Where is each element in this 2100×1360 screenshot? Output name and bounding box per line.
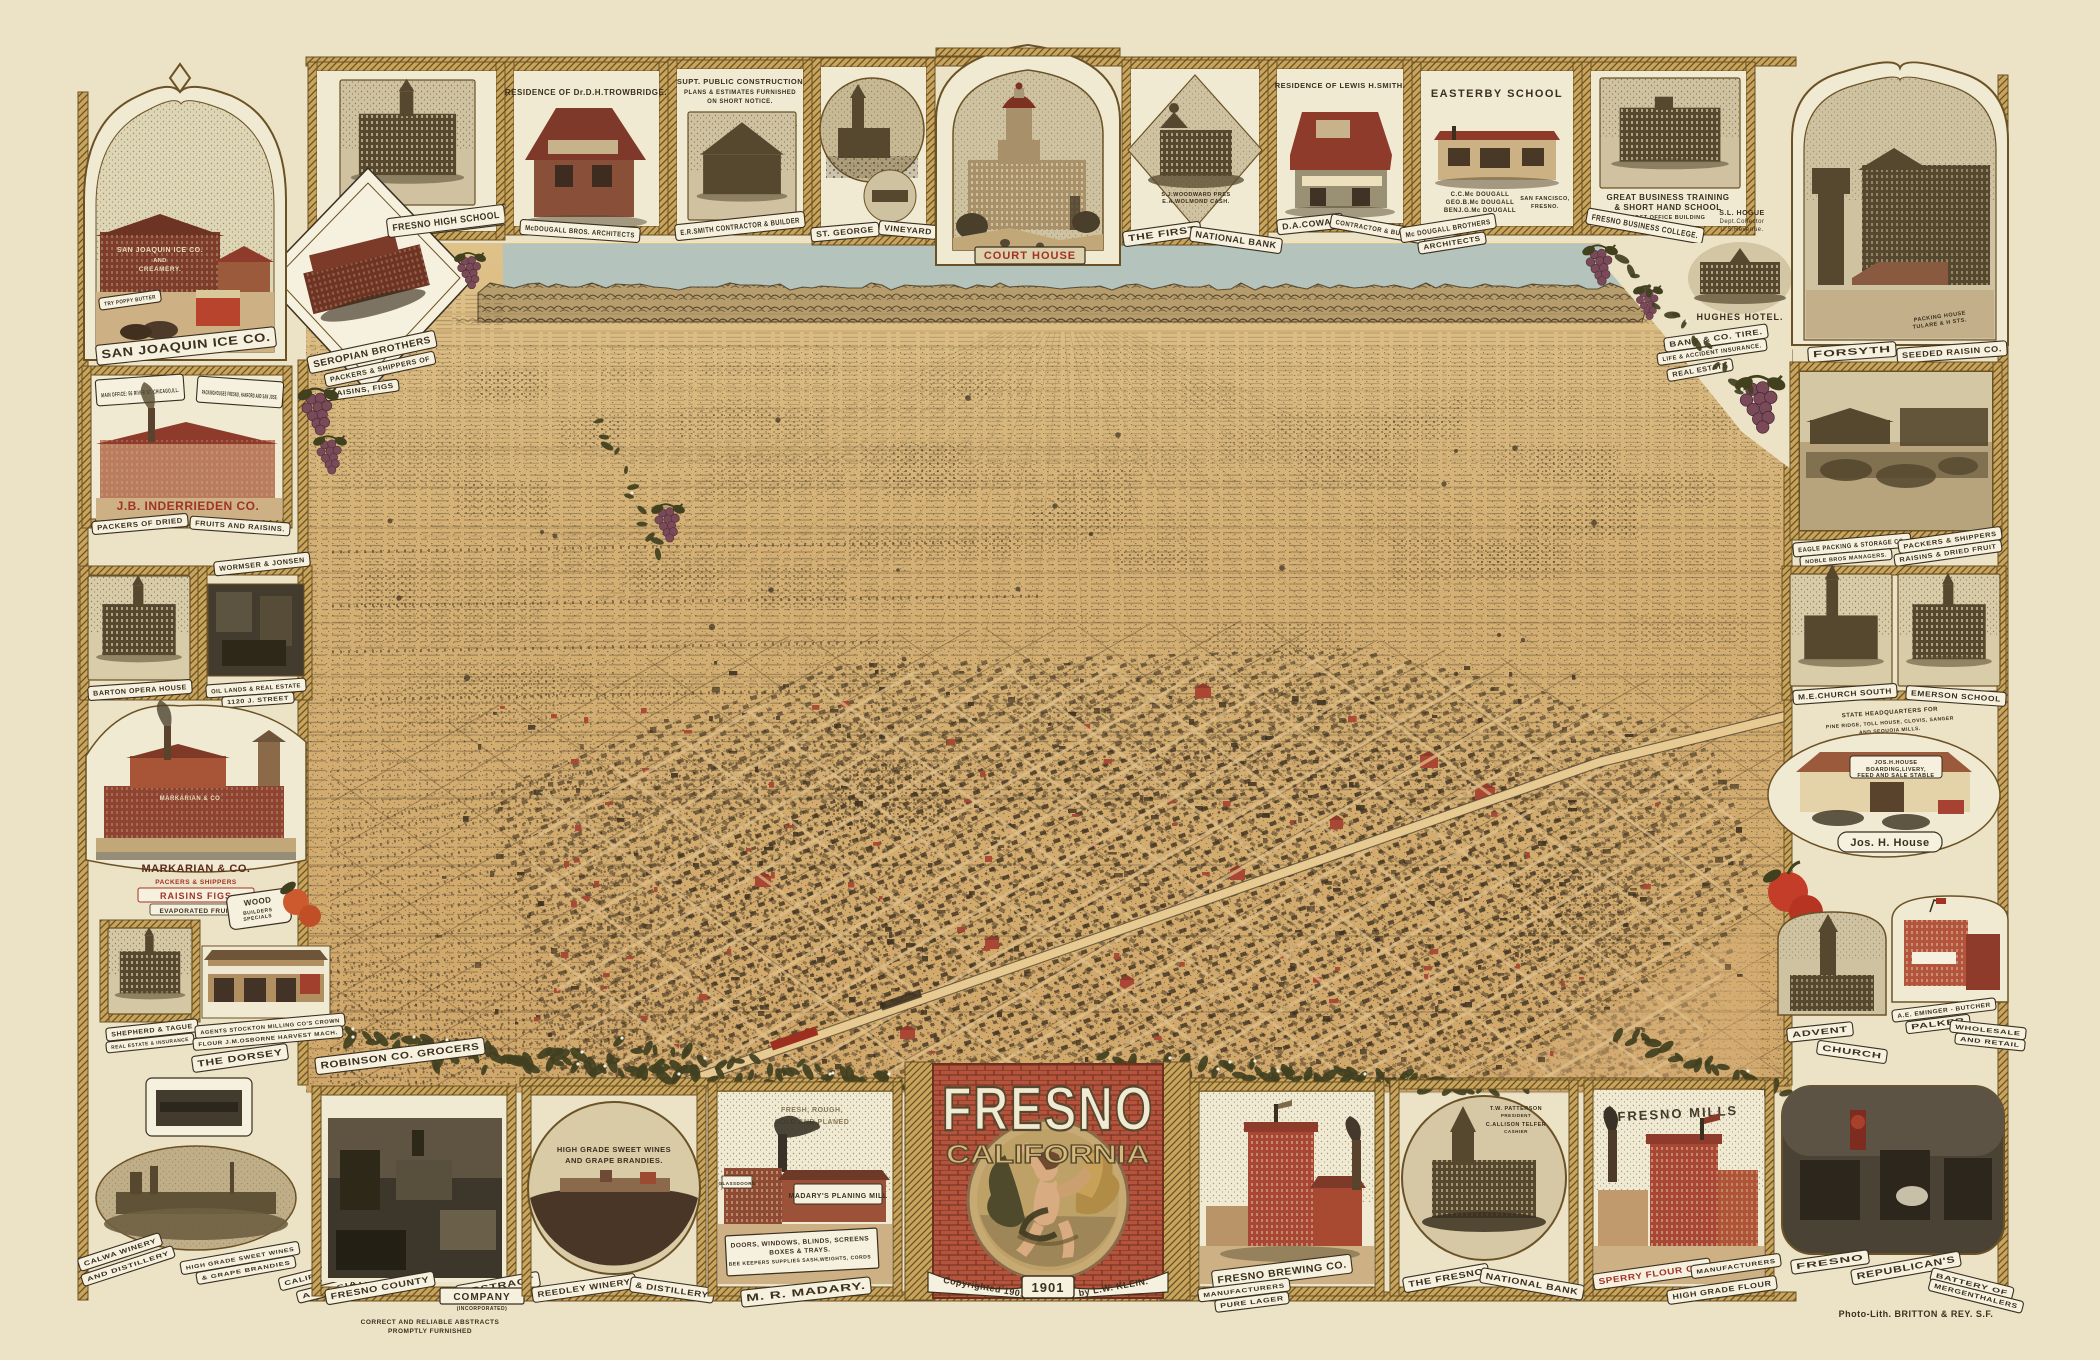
svg-text:EVAPORATED FRUIT: EVAPORATED FRUIT <box>159 908 232 915</box>
svg-text:MARKARIAN & CO: MARKARIAN & CO <box>160 796 221 802</box>
svg-text:GEO.B.Mc DOUGALL: GEO.B.Mc DOUGALL <box>1446 200 1515 206</box>
svg-text:JOS.H.HOUSE: JOS.H.HOUSE <box>1874 760 1917 766</box>
svg-text:& SHORT HAND SCHOOL: & SHORT HAND SCHOOL <box>1614 203 1721 212</box>
svg-text:SAN FANCISCO,: SAN FANCISCO, <box>1520 196 1570 202</box>
svg-text:ON SHORT NOTICE.: ON SHORT NOTICE. <box>707 99 773 105</box>
svg-text:S.L. HOGUE: S.L. HOGUE <box>1719 210 1764 217</box>
svg-text:MADARY'S PLANING MILL: MADARY'S PLANING MILL <box>788 1193 887 1200</box>
svg-text:COURT HOUSE: COURT HOUSE <box>984 250 1076 262</box>
svg-text:J.B. INDERRIEDEN CO.: J.B. INDERRIEDEN CO. <box>117 499 260 513</box>
svg-text:RESIDENCE OF LEWIS H.SMITH.: RESIDENCE OF LEWIS H.SMITH. <box>1275 81 1406 90</box>
svg-text:FRESH, ROUGH,: FRESH, ROUGH, <box>781 1107 843 1114</box>
svg-text:PLANS & ESTIMATES FURNISHED: PLANS & ESTIMATES FURNISHED <box>684 90 796 96</box>
svg-text:SAN JOAQUIN ICE CO.: SAN JOAQUIN ICE CO. <box>117 247 203 254</box>
svg-text:MARKARIAN & CO.: MARKARIAN & CO. <box>142 863 251 875</box>
svg-text:Jos. H. House: Jos. H. House <box>1850 837 1929 849</box>
svg-text:PROMPTLY FURNISHED: PROMPTLY FURNISHED <box>388 1328 472 1335</box>
svg-text:FRESNO: FRESNO <box>942 1075 1154 1144</box>
svg-text:C.ALLISON TELFER: C.ALLISON TELFER <box>1486 1122 1547 1128</box>
svg-text:CORRECT AND RELIABLE ABSTRACTS: CORRECT AND RELIABLE ABSTRACTS <box>361 1319 500 1326</box>
svg-text:C.C.Mc DOUGALL: C.C.Mc DOUGALL <box>1451 192 1510 198</box>
svg-text:AND GRAPE BRANDIES.: AND GRAPE BRANDIES. <box>565 1156 663 1165</box>
svg-text:E.A.WOLMOND CASH.: E.A.WOLMOND CASH. <box>1162 199 1229 205</box>
svg-text:Photo-Lith. BRITTON & REY. S.F: Photo-Lith. BRITTON & REY. S.F. <box>1839 1309 1994 1319</box>
svg-text:T.W. PATTERSON: T.W. PATTERSON <box>1490 1106 1542 1112</box>
svg-text:FRESNO.: FRESNO. <box>1531 204 1559 210</box>
svg-text:HUGHES HOTEL.: HUGHES HOTEL. <box>1696 312 1783 322</box>
svg-text:GLASSDOORS: GLASSDOORS <box>718 1181 755 1186</box>
svg-text:CALIFORNIA: CALIFORNIA <box>946 1139 1150 1169</box>
svg-text:S.J.WOODWARD PRES: S.J.WOODWARD PRES <box>1161 192 1230 198</box>
svg-text:BENJ.G.Mc DOUGALL: BENJ.G.Mc DOUGALL <box>1444 208 1516 214</box>
svg-text:AND: AND <box>153 258 166 264</box>
svg-text:GREAT BUSINESS TRAINING: GREAT BUSINESS TRAINING <box>1607 193 1730 202</box>
svg-text:(INCORPORATED): (INCORPORATED) <box>457 1306 508 1312</box>
svg-text:HIGH GRADE SWEET WINES: HIGH GRADE SWEET WINES <box>557 1145 671 1154</box>
svg-text:SUPT. PUBLIC CONSTRUCTION: SUPT. PUBLIC CONSTRUCTION <box>677 77 803 86</box>
svg-text:RESIDENCE OF Dr.D.H.TROWBRIDGE: RESIDENCE OF Dr.D.H.TROWBRIDGE. <box>505 88 667 97</box>
svg-text:PACKERS & SHIPPERS: PACKERS & SHIPPERS <box>155 879 237 886</box>
svg-text:EASTERBY SCHOOL: EASTERBY SCHOOL <box>1431 88 1563 100</box>
svg-text:FEED AND SALE STABLE: FEED AND SALE STABLE <box>1857 773 1934 779</box>
svg-text:Dept.Collector: Dept.Collector <box>1719 219 1764 225</box>
svg-text:PRESIDENT: PRESIDENT <box>1501 1113 1531 1118</box>
svg-text:RAISINS FIGS: RAISINS FIGS <box>160 891 232 901</box>
svg-text:COMPANY: COMPANY <box>453 1292 510 1303</box>
svg-text:U.S.Revenue.: U.S.Revenue. <box>1720 227 1763 233</box>
svg-text:1901: 1901 <box>1032 1280 1065 1295</box>
svg-text:CREAMERY.: CREAMERY. <box>139 266 182 273</box>
svg-text:CASHIER: CASHIER <box>1504 1129 1528 1134</box>
